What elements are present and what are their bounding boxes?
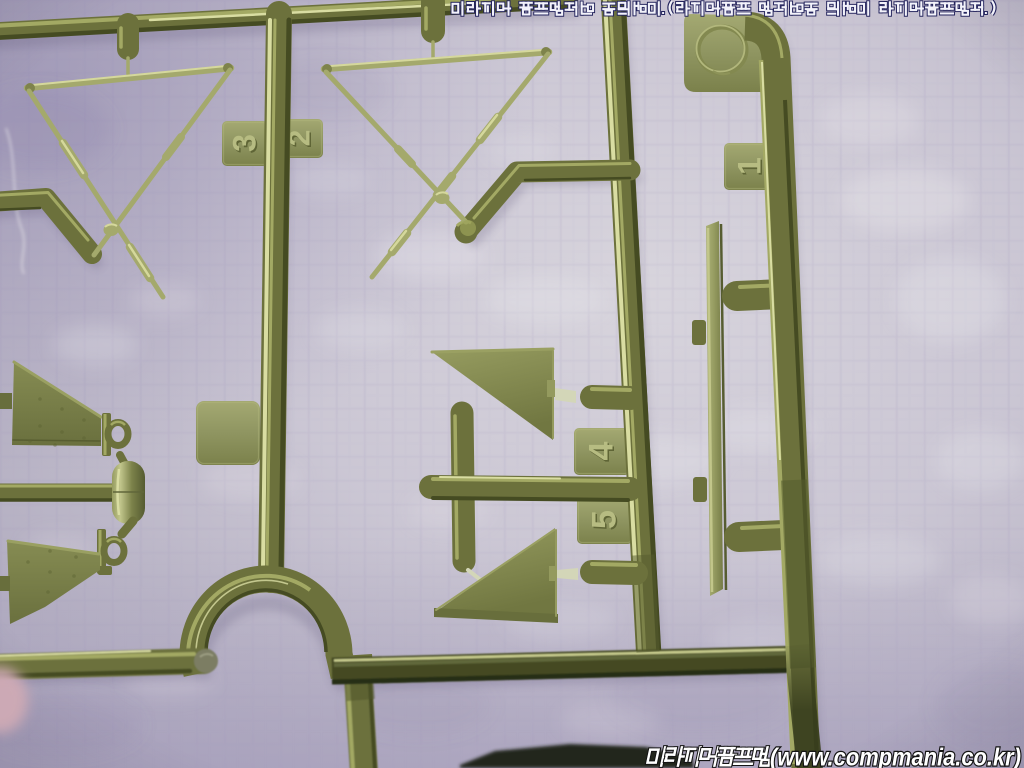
svg-text:5: 5 bbox=[586, 510, 624, 529]
svg-text:1: 1 bbox=[732, 157, 768, 175]
svg-text:(www.compmania.co.kr): (www.compmania.co.kr) bbox=[770, 744, 1021, 768]
svg-text:3: 3 bbox=[227, 134, 263, 152]
svg-text:4: 4 bbox=[583, 441, 621, 460]
